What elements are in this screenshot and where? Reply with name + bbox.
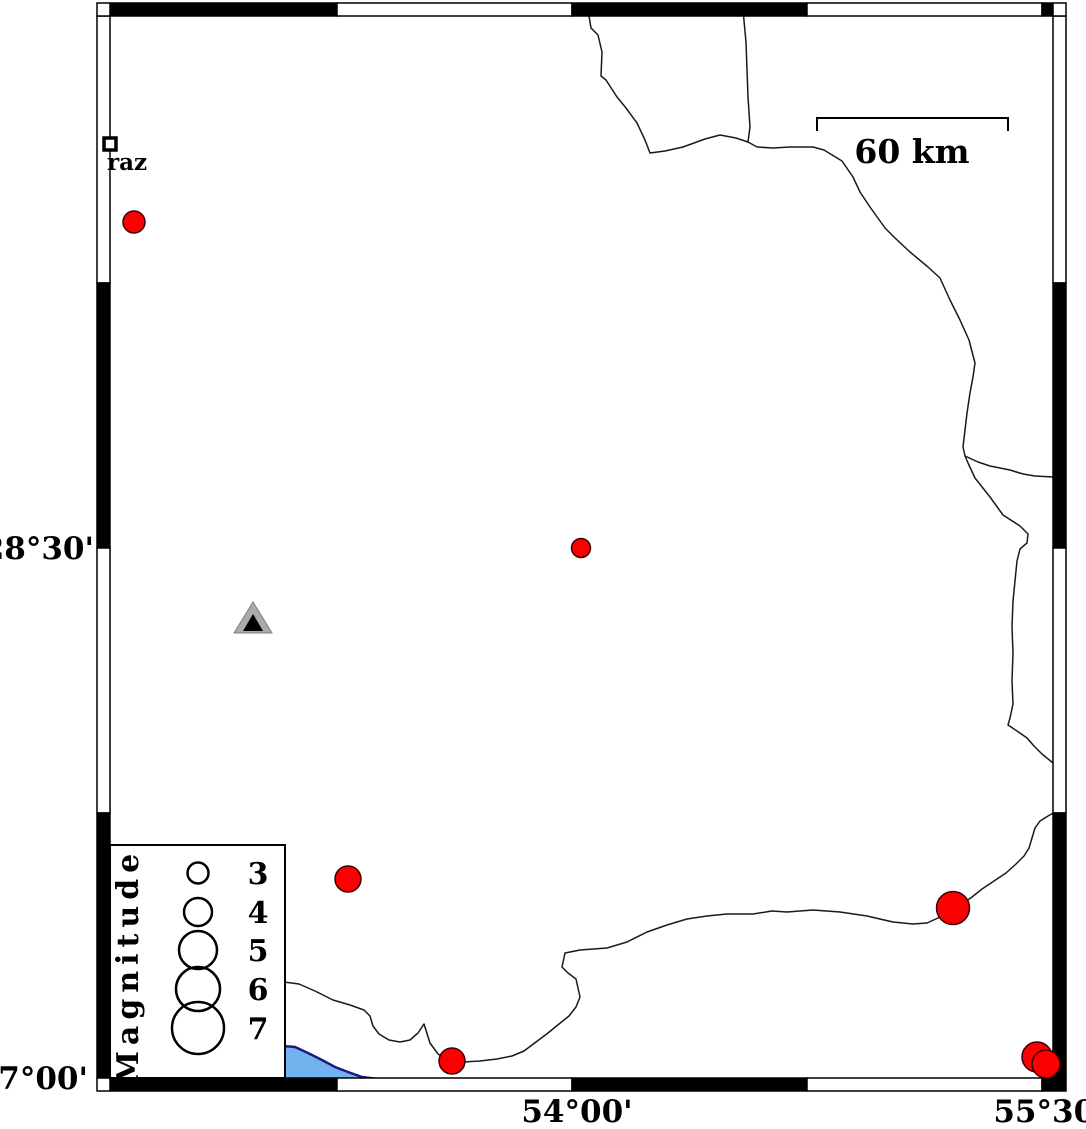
frame-corner	[1053, 3, 1066, 16]
earthquake-marker	[335, 866, 361, 892]
earthquake-marker	[572, 539, 591, 558]
earthquake-marker	[123, 211, 145, 233]
frame-segment-top	[572, 3, 807, 16]
frame-segment-bottom	[572, 1078, 807, 1091]
city-label: raz	[107, 149, 147, 176]
frame-segment-right	[1053, 813, 1066, 1078]
magnitude-legend: Magnitude 34567	[110, 845, 285, 1084]
frame-segment-top	[337, 3, 572, 16]
legend-magnitude-label: 3	[248, 857, 269, 892]
legend-title: Magnitude	[111, 848, 146, 1085]
frame-corner	[97, 1078, 110, 1091]
frame-segment-left	[97, 548, 110, 813]
frame-segment-bottom	[337, 1078, 572, 1091]
lat-label-27-00: 27°00'	[0, 1061, 88, 1097]
frame-corner	[97, 3, 110, 16]
lon-label-55-30: 55°30'	[993, 1094, 1086, 1129]
legend-magnitude-label: 6	[248, 973, 269, 1008]
map-canvas: raz Magnitude 34567 60 km 28°30' 27°00' …	[0, 0, 1086, 1129]
frame-segment-bottom	[807, 1078, 1042, 1091]
frame-segment-left	[97, 813, 110, 1078]
earthquake-marker	[439, 1048, 465, 1074]
earthquake-marker	[1032, 1050, 1060, 1078]
legend-magnitude-label: 4	[248, 896, 269, 931]
frame-segment-top	[807, 3, 1042, 16]
frame-segment-right	[1053, 16, 1066, 283]
frame-segment-left	[97, 283, 110, 548]
frame-segment-top	[110, 3, 337, 16]
frame-segment-bottom	[1042, 1078, 1053, 1091]
lat-label-28-30: 28°30'	[0, 531, 94, 567]
legend-magnitude-label: 7	[248, 1012, 269, 1047]
lon-label-54-00: 54°00'	[521, 1094, 632, 1129]
frame-corner	[1053, 1078, 1066, 1091]
frame-segment-right	[1053, 283, 1066, 548]
frame-segment-top	[1042, 3, 1053, 16]
legend-magnitude-label: 5	[248, 934, 269, 969]
scale-bar-label: 60 km	[854, 132, 969, 171]
frame-segment-right	[1053, 548, 1066, 813]
earthquake-marker	[937, 892, 970, 925]
seismicity-map: raz Magnitude 34567 60 km 28°30' 27°00' …	[0, 0, 1086, 1129]
